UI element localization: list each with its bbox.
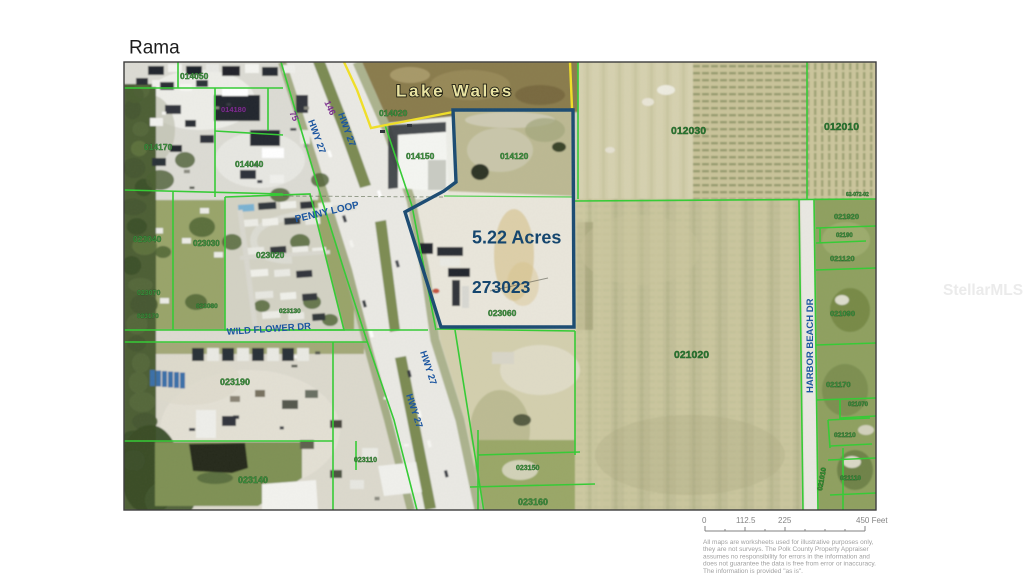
svg-text:All maps are worksheets used f: All maps are worksheets used for illustr…: [703, 539, 874, 546]
svg-text:023080: 023080: [196, 303, 218, 310]
svg-text:023060: 023060: [488, 308, 517, 318]
svg-text:014120: 014120: [500, 151, 529, 161]
svg-text:023170: 023170: [137, 313, 159, 320]
svg-text:they are not surveys. The Polk: they are not surveys. The Polk County Pr…: [703, 546, 870, 553]
svg-text:014020: 014020: [379, 108, 408, 118]
svg-text:Lake Wales: Lake Wales: [396, 82, 514, 101]
svg-text:021120: 021120: [830, 254, 855, 263]
svg-text:021920: 021920: [834, 212, 859, 221]
svg-text:021170: 021170: [826, 380, 851, 389]
svg-text:023070: 023070: [137, 290, 160, 297]
svg-text:273023: 273023: [472, 277, 531, 297]
svg-text:021020: 021020: [674, 349, 709, 361]
svg-text:5.22 Acres: 5.22 Acres: [472, 228, 561, 248]
svg-text:023110: 023110: [354, 457, 377, 464]
svg-text:021090: 021090: [830, 309, 855, 318]
svg-text:The information is provided "a: The information is provided "as is".: [703, 568, 803, 575]
svg-text:014150: 014150: [406, 151, 435, 161]
svg-text:014170: 014170: [144, 142, 173, 152]
svg-text:112.5: 112.5: [736, 516, 756, 525]
svg-text:225: 225: [778, 516, 792, 525]
svg-text:HARBOR BEACH DR: HARBOR BEACH DR: [805, 298, 816, 393]
svg-text:02190: 02190: [836, 233, 853, 239]
svg-text:023160: 023160: [518, 497, 548, 507]
svg-text:023130: 023130: [279, 308, 301, 315]
svg-text:023150: 023150: [516, 465, 539, 472]
svg-text:assumes no responsibility for: assumes no responsibility for errors in …: [703, 553, 870, 560]
svg-text:StellarMLS: StellarMLS: [943, 282, 1023, 299]
svg-text:021070: 021070: [848, 402, 869, 408]
svg-text:62-072-02: 62-072-02: [846, 192, 869, 198]
svg-text:021110: 021110: [840, 475, 861, 482]
svg-text:023020: 023020: [256, 250, 285, 260]
svg-text:023140: 023140: [238, 475, 268, 485]
svg-text:0: 0: [702, 516, 707, 525]
svg-text:does not guarantee the data is: does not guarantee the data is free from…: [703, 561, 876, 568]
svg-text:021210: 021210: [834, 432, 856, 439]
svg-text:012030: 012030: [671, 125, 706, 137]
svg-text:014050: 014050: [180, 71, 209, 81]
svg-text:014180: 014180: [221, 105, 246, 114]
svg-text:023040: 023040: [133, 234, 162, 244]
svg-text:450 Feet: 450 Feet: [856, 516, 888, 525]
svg-text:Rama: Rama: [129, 38, 180, 59]
svg-text:012010: 012010: [824, 121, 859, 133]
svg-text:014040: 014040: [235, 159, 264, 169]
svg-text:023190: 023190: [220, 377, 250, 387]
svg-text:023030: 023030: [193, 239, 220, 248]
